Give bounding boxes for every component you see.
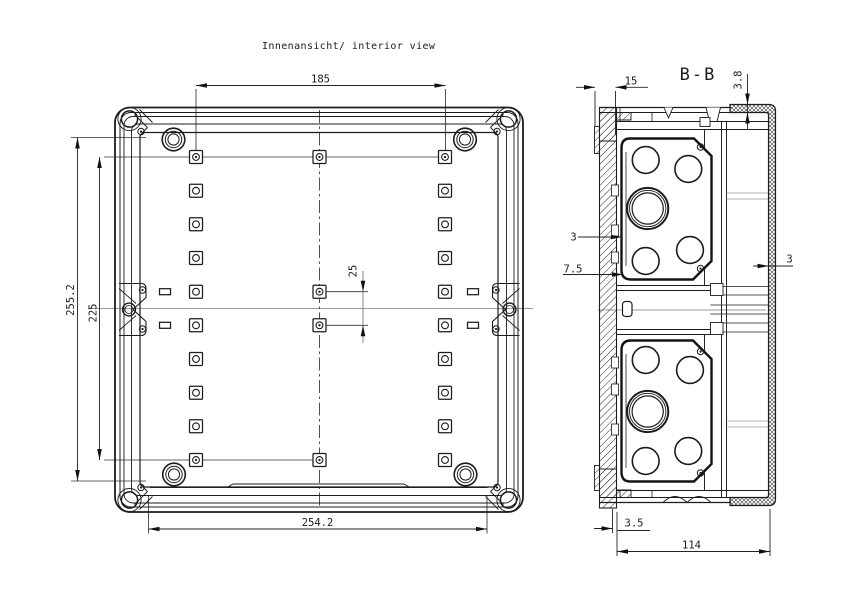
dim-top-width: 185 xyxy=(311,74,330,86)
mounting-hole-center-mark xyxy=(318,291,320,293)
mounting-hole xyxy=(190,285,203,298)
mounting-hole-center-mark xyxy=(318,324,320,326)
mounting-hole xyxy=(439,420,452,433)
mounting-hole-center-mark xyxy=(318,156,320,158)
mounting-hole-center-mark xyxy=(195,156,197,158)
mounting-hole xyxy=(439,353,452,366)
mounting-hole xyxy=(439,319,452,332)
mounting-hole-center-mark xyxy=(318,459,320,461)
mounting-hole-center-mark xyxy=(444,156,446,158)
section-label: B-B xyxy=(680,65,717,85)
drawing-title: Innenansicht/ interior view xyxy=(262,41,436,52)
mounting-hole xyxy=(190,252,203,265)
mounting-hole xyxy=(190,353,203,366)
dim-depth: 114 xyxy=(682,540,701,552)
mounting-hole xyxy=(190,184,203,197)
mounting-hole xyxy=(190,319,203,332)
mounting-hole xyxy=(190,218,203,231)
mounting-hole xyxy=(439,454,452,467)
mounting-hole xyxy=(190,386,203,399)
mounting-hole xyxy=(439,184,452,197)
flange-panel-bottom xyxy=(622,341,712,482)
dim-wall-left: 3 xyxy=(570,232,576,244)
flange-panel-top xyxy=(622,139,712,280)
dim-cover-thickness: 3.8 xyxy=(733,71,745,90)
dim-center-spacing: 25 xyxy=(348,265,360,278)
mounting-hole xyxy=(439,252,452,265)
mounting-hole xyxy=(439,285,452,298)
dim-wall-right: 3 xyxy=(786,254,792,266)
dim-left-inner-height: 225 xyxy=(88,304,100,323)
dim-flange-inset: 15 xyxy=(625,76,638,88)
mounting-hole xyxy=(439,218,452,231)
mounting-hole xyxy=(439,386,452,399)
dim-flange-depth: 7.5 xyxy=(564,264,583,276)
mounting-hole xyxy=(190,420,203,433)
technical-drawing-canvas: 185 255.2 225 25 254.2 15 3.8 3 7.5 3 3.… xyxy=(0,0,863,610)
mounting-hole-center-mark xyxy=(195,459,197,461)
dim-base-offset: 3.5 xyxy=(625,518,644,530)
dim-left-outer-height: 255.2 xyxy=(65,284,77,316)
dim-bottom-width: 254.2 xyxy=(302,517,334,529)
